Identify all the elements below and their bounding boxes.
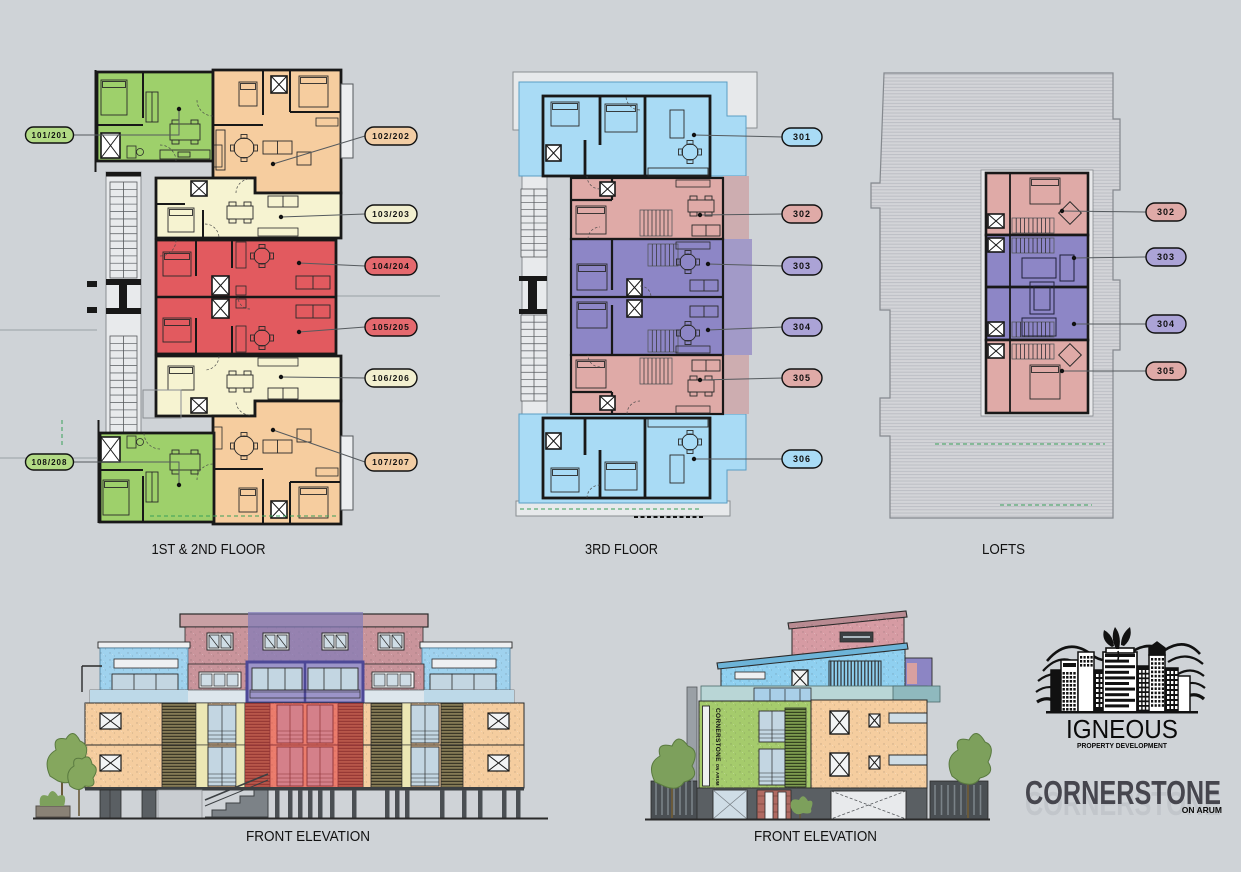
svg-text:301: 301 [793,132,811,142]
svg-text:LOFTS: LOFTS [982,541,1025,558]
svg-text:103/203: 103/203 [372,209,410,219]
svg-text:304: 304 [793,322,811,332]
svg-text:FRONT ELEVATION: FRONT ELEVATION [754,828,877,845]
svg-text:303: 303 [1157,252,1175,262]
svg-text:3RD FLOOR: 3RD FLOOR [585,541,658,558]
svg-text:302: 302 [1157,207,1175,217]
svg-text:305: 305 [793,373,811,383]
svg-text:108/208: 108/208 [32,458,68,467]
svg-text:107/207: 107/207 [372,457,410,467]
svg-text:305: 305 [1157,366,1175,376]
svg-text:104/204: 104/204 [372,261,410,271]
svg-text:306: 306 [793,454,811,464]
svg-text:PROPERTY DEVELOPMENT: PROPERTY DEVELOPMENT [1077,741,1167,750]
svg-text:106/206: 106/206 [372,373,410,383]
svg-text:102/202: 102/202 [372,131,410,141]
svg-text:CORNERSTONE ON ARUM: CORNERSTONE ON ARUM [714,708,721,786]
svg-text:FRONT ELEVATION: FRONT ELEVATION [246,828,370,845]
svg-text:304: 304 [1157,319,1175,329]
svg-text:105/205: 105/205 [372,322,410,332]
svg-text:1ST & 2ND FLOOR: 1ST & 2ND FLOOR [152,541,266,558]
svg-text:IGNEOUS: IGNEOUS [1066,714,1178,744]
svg-text:101/201: 101/201 [32,131,68,140]
svg-text:302: 302 [793,209,811,219]
svg-text:ON ARUM: ON ARUM [1182,805,1222,815]
svg-text:303: 303 [793,261,811,271]
